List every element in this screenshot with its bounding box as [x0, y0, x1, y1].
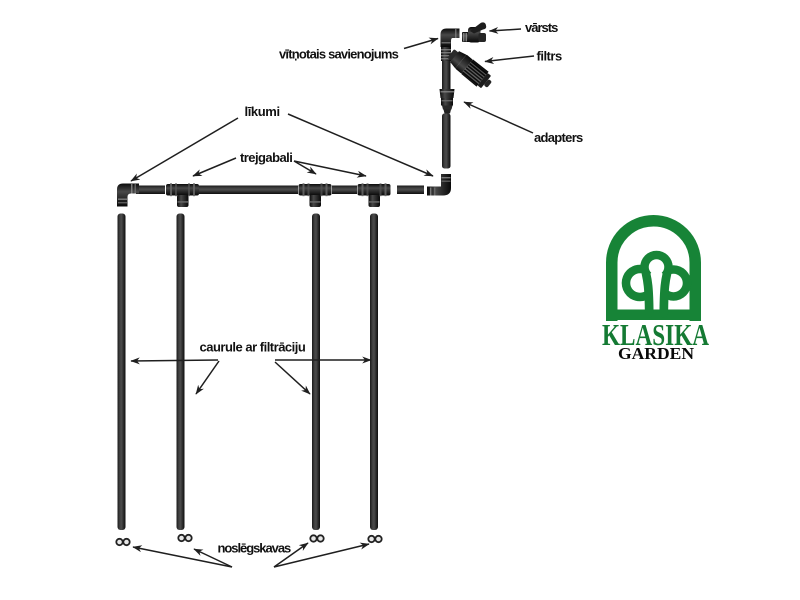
svg-text:adapters: adapters	[534, 130, 583, 145]
svg-text:noslēgskavas: noslēgskavas	[218, 541, 291, 556]
svg-text:vārsts: vārsts	[525, 20, 558, 35]
svg-text:filtrs: filtrs	[537, 49, 562, 64]
svg-text:GARDEN: GARDEN	[618, 344, 695, 363]
svg-text:trejgabali: trejgabali	[240, 150, 292, 165]
svg-text:līkumi: līkumi	[245, 104, 280, 119]
svg-text:caurule ar filtrāciju: caurule ar filtrāciju	[200, 340, 306, 355]
svg-text:vītņotais savienojums: vītņotais savienojums	[279, 47, 399, 62]
